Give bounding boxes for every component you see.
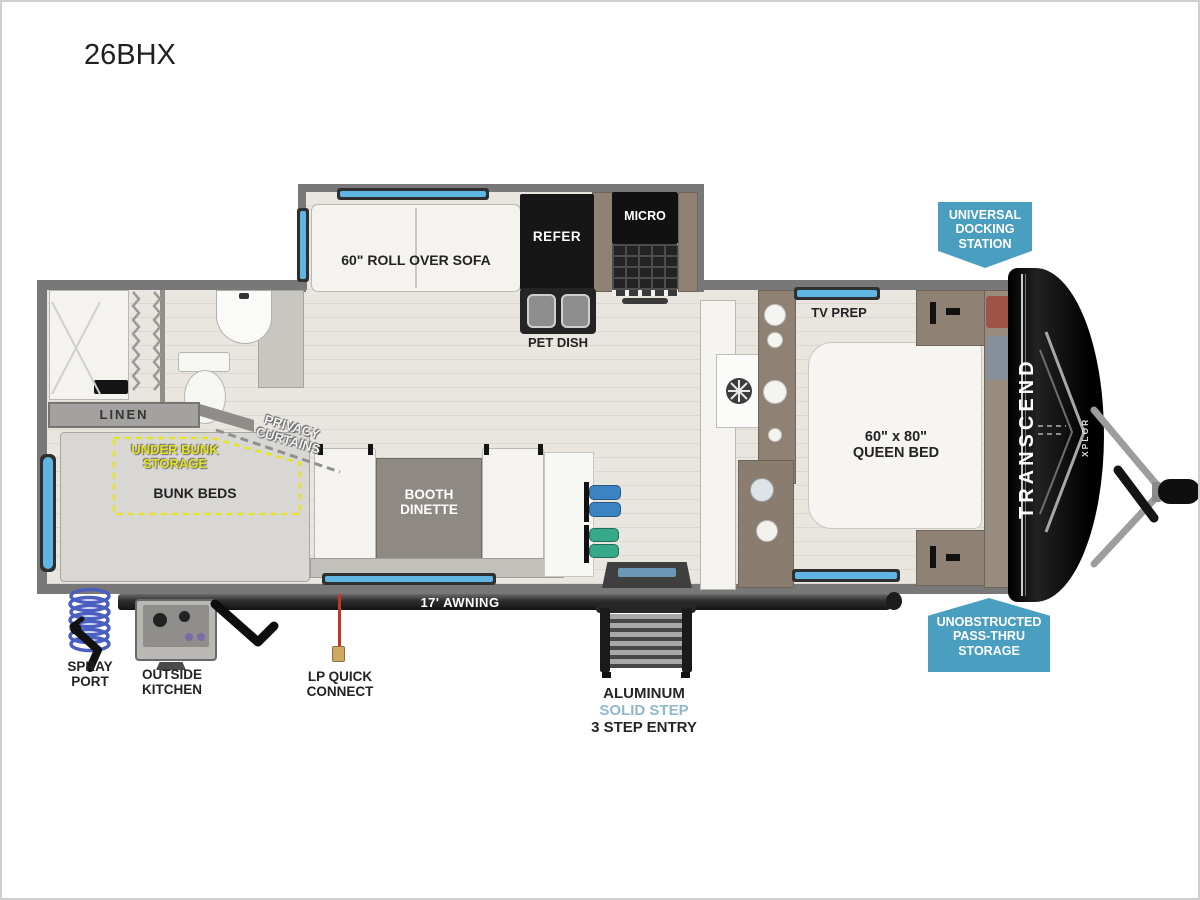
spray-port-label: SPRAY PORT — [48, 660, 132, 689]
bunk-beds-label: BUNK BEDS — [130, 486, 260, 501]
step-entry-label: 3 STEP ENTRY — [586, 720, 702, 736]
sink-drain — [726, 378, 752, 404]
lp-quick-connect-label: LP QUICK CONNECT — [298, 670, 382, 699]
accordion-door — [133, 292, 160, 390]
floorplan-26bhx: 26BHX 60" ROLL OVER SOFA REFER MICRO PET… — [0, 0, 1200, 900]
shower-glass-lines — [52, 302, 100, 394]
kitchen-swing-arm — [215, 604, 274, 642]
brand-series: XPLOR — [1079, 406, 1092, 468]
hitch-a-frame — [1094, 410, 1200, 564]
brand-name: TRANSCEND — [1015, 300, 1041, 576]
cap-chevron-graphic — [1038, 332, 1084, 532]
step-material-label: ALUMINUM — [586, 686, 702, 702]
under-bunk-storage-label: UNDER BUNK STORAGE — [114, 443, 236, 471]
step-type-label: SOLID STEP — [586, 703, 702, 719]
outside-kitchen-label: OUTSIDE KITCHEN — [126, 668, 218, 697]
